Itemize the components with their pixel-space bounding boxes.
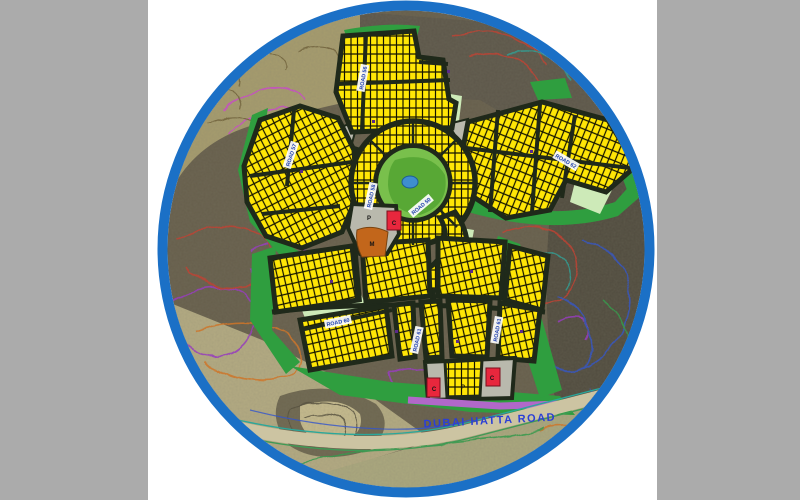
pond [402, 176, 418, 188]
plot-marker: P [461, 385, 465, 391]
screenshot-root: DUBAI HATTA ROAD ROAD 56ROAD 57ROAD 58RO… [0, 0, 800, 500]
plot-marker: C [490, 376, 495, 382]
grid-block [498, 303, 540, 361]
grid-block [300, 306, 392, 370]
plot-marker: P [367, 216, 371, 222]
grid-block [445, 360, 482, 397]
bottom-facility-row [425, 358, 515, 400]
grid-block [421, 301, 442, 358]
plot-marker: C [432, 387, 437, 393]
grid-block [270, 246, 358, 312]
left-wing-block [244, 106, 357, 248]
grid-block [505, 246, 548, 310]
grid-block [448, 300, 490, 357]
master-plan-svg: DUBAI HATTA ROAD ROAD 56ROAD 57ROAD 58RO… [0, 0, 800, 500]
plot-marker: M [370, 242, 375, 248]
plot-marker: C [392, 221, 397, 227]
grid-block [438, 238, 505, 298]
